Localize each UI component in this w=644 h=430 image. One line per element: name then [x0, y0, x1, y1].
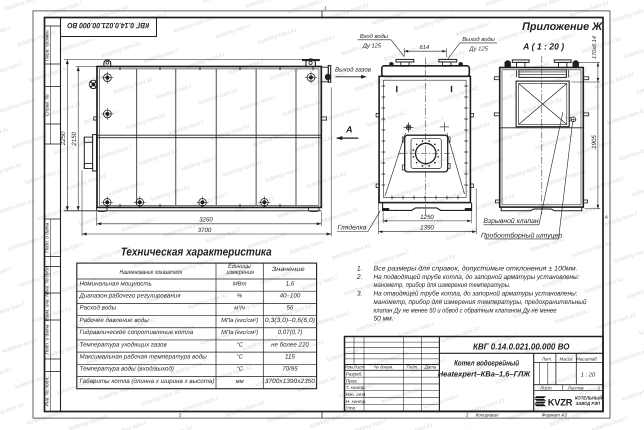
svg-text:Техническая характеристика: Техническая характеристика	[121, 246, 273, 258]
svg-text:1250: 1250	[420, 214, 434, 221]
svg-text:2: 2	[178, 412, 182, 417]
svg-text:Выход воды: Выход воды	[462, 36, 495, 43]
svg-text:Лит.: Лит.	[541, 356, 552, 361]
svg-text:70/95: 70/95	[282, 366, 298, 373]
svg-text:измерения: измерения	[226, 269, 254, 276]
svg-text:Максимальная рабочая температу: Максимальная рабочая температура воды	[80, 353, 208, 360]
svg-text:Температура воды (вход/выход): Температура воды (вход/выход)	[80, 366, 174, 373]
svg-text:Котел водогрейный: Котел водогрейный	[454, 358, 519, 367]
svg-text:Масштаб: Масштаб	[576, 356, 597, 361]
svg-text:м³/ч: м³/ч	[234, 305, 245, 312]
svg-text:50 мм.: 50 мм.	[374, 316, 394, 323]
svg-text:Нач. отд.: Нач. отд.	[346, 392, 367, 397]
svg-text:KVZR: KVZR	[548, 397, 573, 408]
svg-text:3.: 3.	[357, 291, 363, 298]
svg-text:°С: °С	[236, 341, 243, 348]
svg-text:1 : 20: 1 : 20	[581, 371, 596, 378]
svg-text:Расход воды: Расход воды	[80, 305, 117, 312]
svg-text:КОТЕЛЬНЫЙ: КОТЕЛЬНЫЙ	[575, 394, 603, 400]
svg-text:115: 115	[285, 353, 295, 360]
svg-text:Все размеры для справок, допус: Все размеры для справок, допустимые откл…	[374, 265, 578, 272]
svg-text:614: 614	[419, 44, 429, 51]
svg-text:мм: мм	[236, 379, 244, 385]
svg-text:Габариты котла (длинна х ширин: Габариты котла (длинна х ширина х высота…	[80, 378, 215, 385]
svg-text:Инв. № дубл.: Инв. № дубл.	[44, 265, 50, 295]
svg-text:Подп. и дата: Подп. и дата	[44, 222, 50, 252]
svg-text:Температура уходящих газов: Температура уходящих газов	[80, 341, 168, 348]
svg-text:Значение: Значение	[272, 266, 306, 273]
svg-text:Масса: Масса	[560, 356, 574, 361]
svg-text:Гляделка: Гляделка	[338, 225, 367, 232]
svg-text:Номинальная мощность: Номинальная мощность	[80, 280, 152, 287]
svg-text:2250: 2250	[60, 131, 67, 146]
svg-text:1390: 1390	[420, 225, 434, 232]
svg-text:Лист: Лист	[353, 365, 366, 370]
svg-text:Вход воды: Вход воды	[360, 33, 389, 40]
svg-text:Рабочее давление воды: Рабочее давление воды	[80, 317, 150, 324]
svg-text:3700х1390х2350: 3700х1390х2350	[265, 378, 316, 385]
svg-text:На подводящей трубе котла, до: На подводящей трубе котла, до запорной а…	[374, 273, 580, 281]
svg-text:КВГ 0.14.0.021.00.000 ВО: КВГ 0.14.0.021.00.000 ВО	[473, 341, 570, 351]
svg-text:0,3(3,0)–0,6(6,0): 0,3(3,0)–0,6(6,0)	[265, 317, 315, 324]
svg-text:°С: °С	[236, 353, 243, 360]
svg-text:Листов: Листов	[567, 385, 585, 390]
svg-text:Ду 125: Ду 125	[362, 42, 382, 49]
svg-text:манометр, прибор для измерения: манометр, прибор для измерения температу…	[374, 298, 587, 306]
svg-text:Наименование показателя: Наименование показателя	[120, 269, 183, 276]
svg-text:%: %	[237, 292, 242, 299]
svg-text:Лист: Лист	[539, 385, 552, 390]
svg-text:40–100: 40–100	[280, 292, 301, 299]
svg-text:ЗАВОД РЭП: ЗАВОД РЭП	[576, 401, 601, 406]
svg-text:Выход газов: Выход газов	[335, 67, 372, 74]
svg-text:56: 56	[287, 305, 294, 312]
svg-text:КВГ 0.14.0.021.00.000 ВО: КВГ 0.14.0.021.00.000 ВО	[67, 21, 149, 30]
svg-text:°С: °С	[236, 366, 243, 373]
svg-text:Взам. инв. №: Взам. инв. №	[44, 291, 50, 321]
svg-text:На отводящей трубе котла, до з: На отводящей трубе котла, до запорной ар…	[374, 290, 578, 298]
svg-text:1: 1	[466, 412, 469, 417]
svg-text:Гидравлическое сопротивление к: Гидравлическое сопротивление котла	[80, 329, 194, 336]
svg-text:А: А	[604, 214, 608, 219]
svg-text:МПа (кгс/см²): МПа (кгс/см²)	[221, 317, 258, 324]
svg-text:Диапазон рабочего регулировани: Диапазон рабочего регулирования	[79, 292, 182, 299]
svg-text:Т. контр.: Т. контр.	[346, 385, 366, 390]
svg-text:клапан Ду не менее 50 и обвод: клапан Ду не менее 50 и обвод с обратным…	[374, 307, 557, 314]
svg-text:1905: 1905	[591, 135, 598, 149]
svg-text:Heatexpert–КВа–1,6–ГЛЖ: Heatexpert–КВа–1,6–ГЛЖ	[438, 369, 531, 378]
svg-text:Дата: Дата	[424, 365, 437, 370]
svg-text:Ду 125: Ду 125	[469, 46, 489, 53]
svg-text:3260: 3260	[199, 217, 213, 224]
svg-text:Формат А3: Формат А3	[542, 412, 568, 417]
svg-text:А ( 1 : 20 ): А ( 1 : 20 )	[522, 42, 564, 52]
svg-text:Копировал: Копировал	[476, 412, 499, 417]
svg-text:не более 220: не более 220	[271, 341, 309, 348]
svg-text:Взрывной клапан: Взрывной клапан	[483, 217, 538, 225]
svg-text:1,6: 1,6	[286, 280, 295, 287]
svg-text:3700: 3700	[198, 227, 212, 234]
svg-text:Перв. примен.: Перв. примен.	[44, 29, 50, 61]
svg-text:Утв.: Утв.	[346, 406, 356, 411]
svg-text:1.: 1.	[357, 265, 363, 272]
svg-text:Пробоотборный штуцер: Пробоотборный штуцер	[481, 231, 563, 239]
svg-text:0,07(0,7): 0,07(0,7)	[278, 329, 303, 336]
svg-text:Справ. №: Справ. №	[44, 94, 50, 117]
svg-text:А: А	[345, 125, 353, 135]
svg-text:Подп.: Подп.	[407, 365, 419, 370]
svg-text:№ докум.: № докум.	[374, 365, 393, 370]
svg-text:Разраб.: Разраб.	[346, 372, 363, 377]
svg-text:2.: 2.	[356, 274, 363, 281]
svg-text:МВт: МВт	[233, 280, 247, 287]
svg-text:Пров.: Пров.	[346, 378, 358, 383]
svg-text:манометр, прибор для измерения: манометр, прибор для измерения температу…	[374, 282, 511, 289]
svg-text:МПа (кгс/см²): МПа (кгс/см²)	[221, 329, 258, 336]
svg-text:2150: 2150	[71, 131, 78, 146]
svg-text:Подп. и дата: Подп. и дата	[44, 324, 50, 354]
svg-text:Инв. № подл.: Инв. № подл.	[44, 377, 50, 407]
svg-text:170х6.14: 170х6.14	[592, 36, 598, 59]
svg-text:Приложение Ж: Приложение Ж	[522, 21, 603, 33]
svg-text:Н. контр.: Н. контр.	[346, 399, 367, 404]
